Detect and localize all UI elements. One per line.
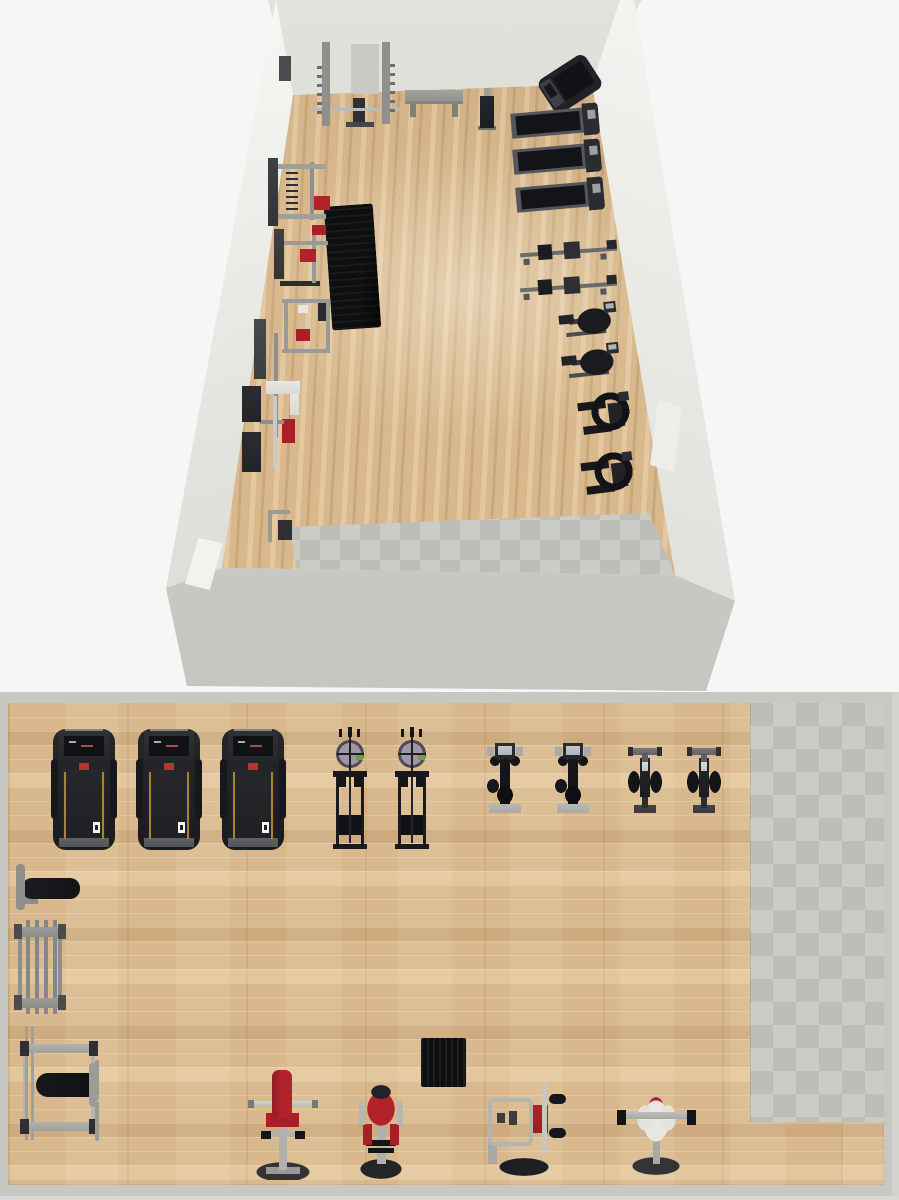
cable-tower[interactable] [395,727,429,850]
weight-machine[interactable] [272,219,336,291]
gym-bench[interactable] [405,84,463,118]
spin-bike[interactable] [687,745,721,813]
plate-loaded-machine[interactable] [240,380,305,475]
shoulder-press-machine[interactable] [487,1083,566,1176]
plan-bottom-wall [0,1196,899,1200]
pec-deck-machine[interactable] [617,1095,696,1178]
exercise-bike[interactable] [555,743,591,813]
3d-view-canvas[interactable] [0,0,899,692]
elliptical-trainer[interactable] [563,443,639,507]
power-rack[interactable] [312,40,400,136]
plan-right-wall [892,692,899,1200]
barbell-rack[interactable] [14,920,66,1014]
preacher-bench[interactable] [248,1068,318,1180]
treadmill[interactable] [222,729,284,850]
upright-bench[interactable] [476,88,498,130]
exercise-bike[interactable] [556,339,622,389]
spin-bike[interactable] [628,745,662,813]
cable-tower[interactable] [333,727,367,850]
treadmill[interactable] [53,729,115,850]
exercise-bike[interactable] [553,298,619,342]
exercise-bike[interactable] [487,743,523,813]
bench-press-station[interactable] [20,1025,103,1143]
2d-floor-plan-canvas[interactable] [0,692,899,1200]
weight-machine[interactable] [262,506,294,546]
elliptical-trainer[interactable] [560,383,637,451]
curl-machine[interactable] [358,1083,404,1181]
wall-sign[interactable] [279,56,291,81]
planner-stage [0,0,899,1200]
tile-area-plan [750,703,884,1122]
treadmill[interactable] [138,729,200,850]
flat-bench[interactable] [14,862,88,912]
exercise-mat[interactable] [421,1038,466,1087]
